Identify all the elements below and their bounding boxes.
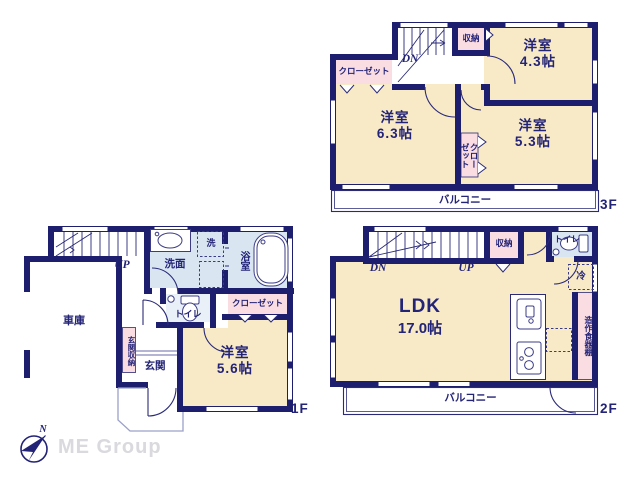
- floor1-plan: [24, 226, 294, 431]
- balcony-label-3f: バルコニー: [332, 194, 598, 207]
- entrance-storage-label: 玄関収納: [123, 330, 135, 371]
- fridge-label-2f: 冷: [568, 271, 594, 282]
- cupboard-label-2f: 造作食器棚: [578, 296, 592, 376]
- ldk-label: LDK17.0帖: [365, 296, 475, 338]
- washroom-label: 洗面: [156, 258, 194, 271]
- room-label-1f-56: 洋室5.6帖: [185, 345, 285, 377]
- balcony-label-2f: バルコニー: [343, 392, 598, 405]
- entrance-step: [136, 351, 177, 355]
- toilet-label-2f: トイレ: [552, 234, 582, 244]
- bathtub: [254, 233, 288, 286]
- stairs-up-label-2f: UP: [452, 262, 480, 276]
- room-label-3f-43: 洋室4.3帖: [488, 38, 588, 70]
- closet-mid-label-3f: クロー ゼット: [461, 135, 478, 176]
- storage-label-3f: 収納: [459, 33, 483, 43]
- stairs-dn-label-3f: DN: [396, 53, 424, 67]
- room-label-3f-63: 洋室6.3帖: [340, 110, 450, 142]
- stairs-dn-label-2f: DN: [364, 262, 392, 276]
- washroom-sink: [151, 230, 191, 252]
- compass-north-label: N: [36, 424, 50, 436]
- entrance-label: 玄関: [138, 360, 172, 373]
- watermark-logo: ME Group: [58, 436, 162, 459]
- floor-label-2f: 2F: [600, 401, 634, 417]
- bath-label: 浴室: [233, 245, 248, 277]
- kitchen-counter: [511, 295, 546, 380]
- floorplan-canvas: クローゼット DN 収納 洋室4.3帖 洋室6.3帖 洋室5.3帖 クロー ゼッ…: [0, 0, 640, 480]
- floor-label-3f: 3F: [600, 197, 634, 213]
- floor-label-1f: 1F: [291, 401, 325, 417]
- toilet-label-1f: トイレ: [166, 309, 210, 320]
- room-label-3f-53: 洋室5.3帖: [478, 118, 588, 150]
- closet-label-3f: クローゼット: [338, 66, 390, 76]
- compass-icon: [21, 436, 47, 463]
- laundry-label: 洗: [203, 238, 219, 249]
- stairs-1f-floor: [54, 232, 144, 258]
- storage-label-2f: 収納: [490, 238, 518, 248]
- stairs-up-label-1f: UP: [108, 259, 136, 273]
- garage-label: 車庫: [56, 315, 92, 328]
- entrance-porch: [118, 388, 183, 431]
- closet-label-1f: クローゼット: [229, 298, 286, 308]
